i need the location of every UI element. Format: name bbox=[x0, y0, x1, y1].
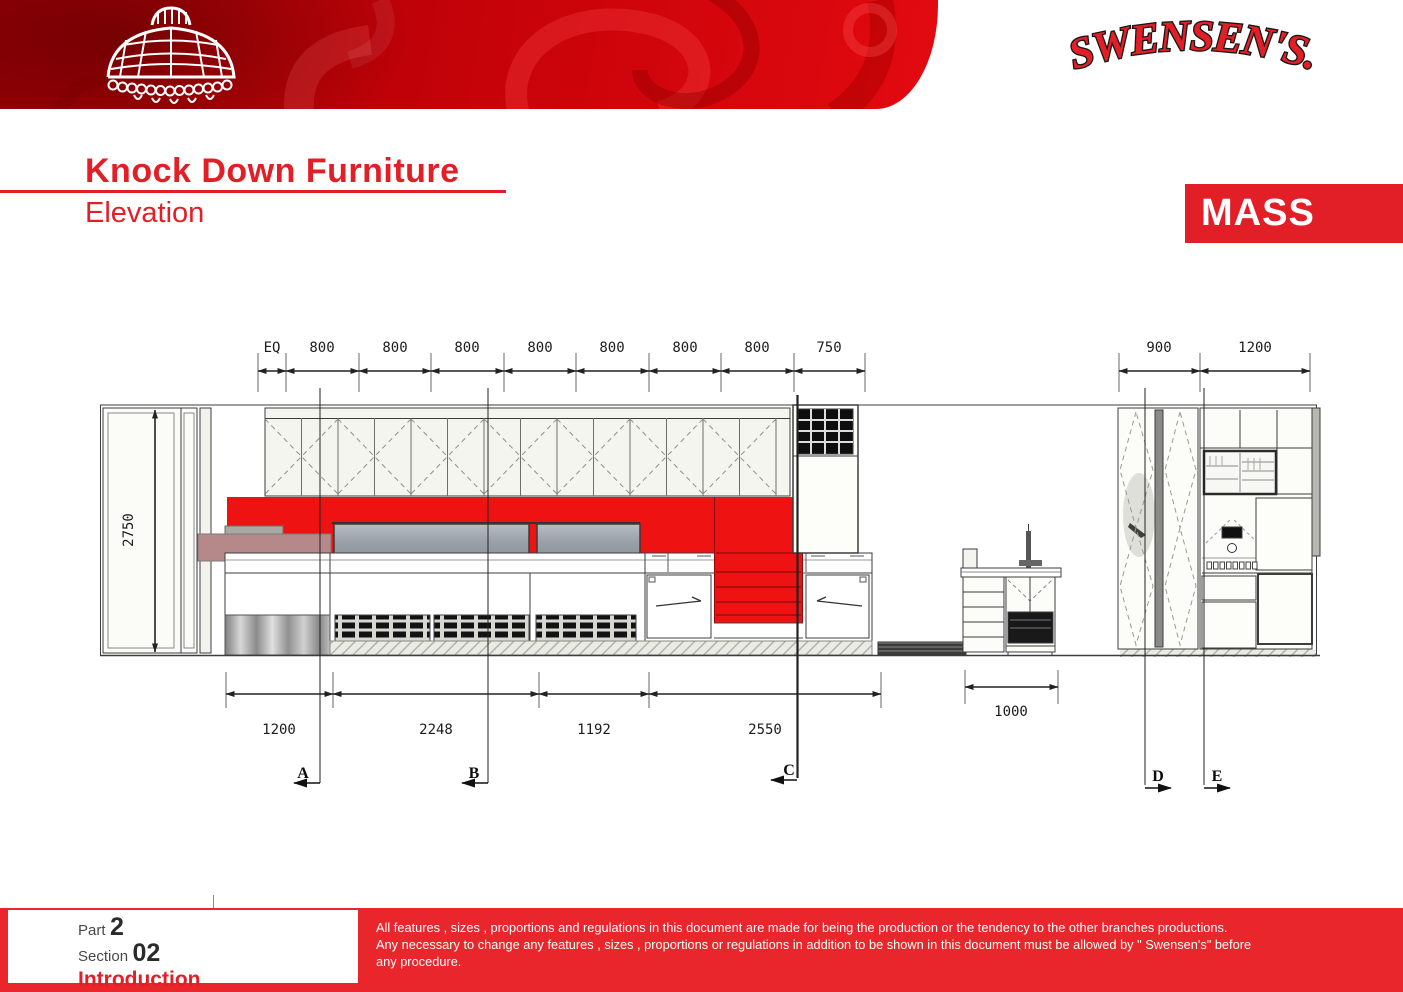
elevation-drawing: EQ 800 800 800 800 800 800 800 750 900 1… bbox=[0, 0, 1403, 992]
tall-unit-grille bbox=[793, 405, 858, 553]
dim-label: 800 bbox=[309, 340, 334, 356]
footer-disclaimer: All features , sizes , proportions and r… bbox=[376, 919, 1391, 970]
metal-base bbox=[225, 615, 330, 655]
dim-label: EQ bbox=[264, 340, 281, 356]
section-marker-c: C bbox=[783, 762, 795, 779]
control-knob bbox=[1228, 544, 1237, 553]
red-open-shelving bbox=[714, 497, 803, 623]
dim-label: 1200 bbox=[262, 722, 296, 738]
height-dim-label: 2750 bbox=[121, 513, 137, 547]
dim-label: 800 bbox=[672, 340, 697, 356]
section-number: 02 bbox=[133, 939, 161, 967]
part-number: 2 bbox=[110, 913, 124, 941]
section-marker-b: B bbox=[469, 765, 480, 782]
dim-label: 800 bbox=[382, 340, 407, 356]
dim-label: 1000 bbox=[994, 704, 1028, 720]
registration-mark bbox=[213, 895, 214, 908]
side-panel bbox=[1312, 408, 1320, 556]
section-label: Section bbox=[78, 948, 128, 965]
footer-part-card: Part 2 Section 02 Introduction bbox=[8, 910, 358, 983]
left-tall-door bbox=[103, 408, 197, 653]
disclaimer-line: Any necessary to change any features , s… bbox=[376, 936, 1391, 953]
dim-label: 800 bbox=[599, 340, 624, 356]
vent-grille bbox=[434, 615, 529, 641]
part-label: Part bbox=[78, 922, 106, 939]
furniture-geometry bbox=[100, 405, 1320, 657]
dim-label: 800 bbox=[454, 340, 479, 356]
chapter-title: Introduction bbox=[78, 968, 358, 992]
appliance-display bbox=[1222, 527, 1242, 538]
dim-label: 800 bbox=[744, 340, 769, 356]
dim-label: 1192 bbox=[577, 722, 611, 738]
prep-station bbox=[961, 524, 1061, 655]
vent-grille bbox=[335, 615, 430, 641]
dim-label: 2550 bbox=[748, 722, 782, 738]
dim-label: 1200 bbox=[1238, 340, 1272, 356]
dim-label: 800 bbox=[527, 340, 552, 356]
dim-label: 2248 bbox=[419, 722, 453, 738]
dim-label: 900 bbox=[1146, 340, 1171, 356]
tall-double-door-cabinet bbox=[1118, 408, 1198, 655]
toe-kick-hatch bbox=[330, 641, 872, 655]
upper-cabinets bbox=[265, 408, 790, 496]
vent-grille bbox=[536, 615, 636, 641]
section-marker-d: D bbox=[1152, 768, 1164, 785]
section-marker-a: A bbox=[297, 765, 309, 782]
wall-column bbox=[200, 408, 211, 653]
section-marker-e: E bbox=[1212, 768, 1223, 785]
floor-mat bbox=[878, 642, 966, 655]
disclaimer-line: All features , sizes , proportions and r… bbox=[376, 919, 1391, 936]
dim-label: 750 bbox=[816, 340, 841, 356]
disclaimer-line: any procedure. bbox=[376, 953, 1391, 970]
